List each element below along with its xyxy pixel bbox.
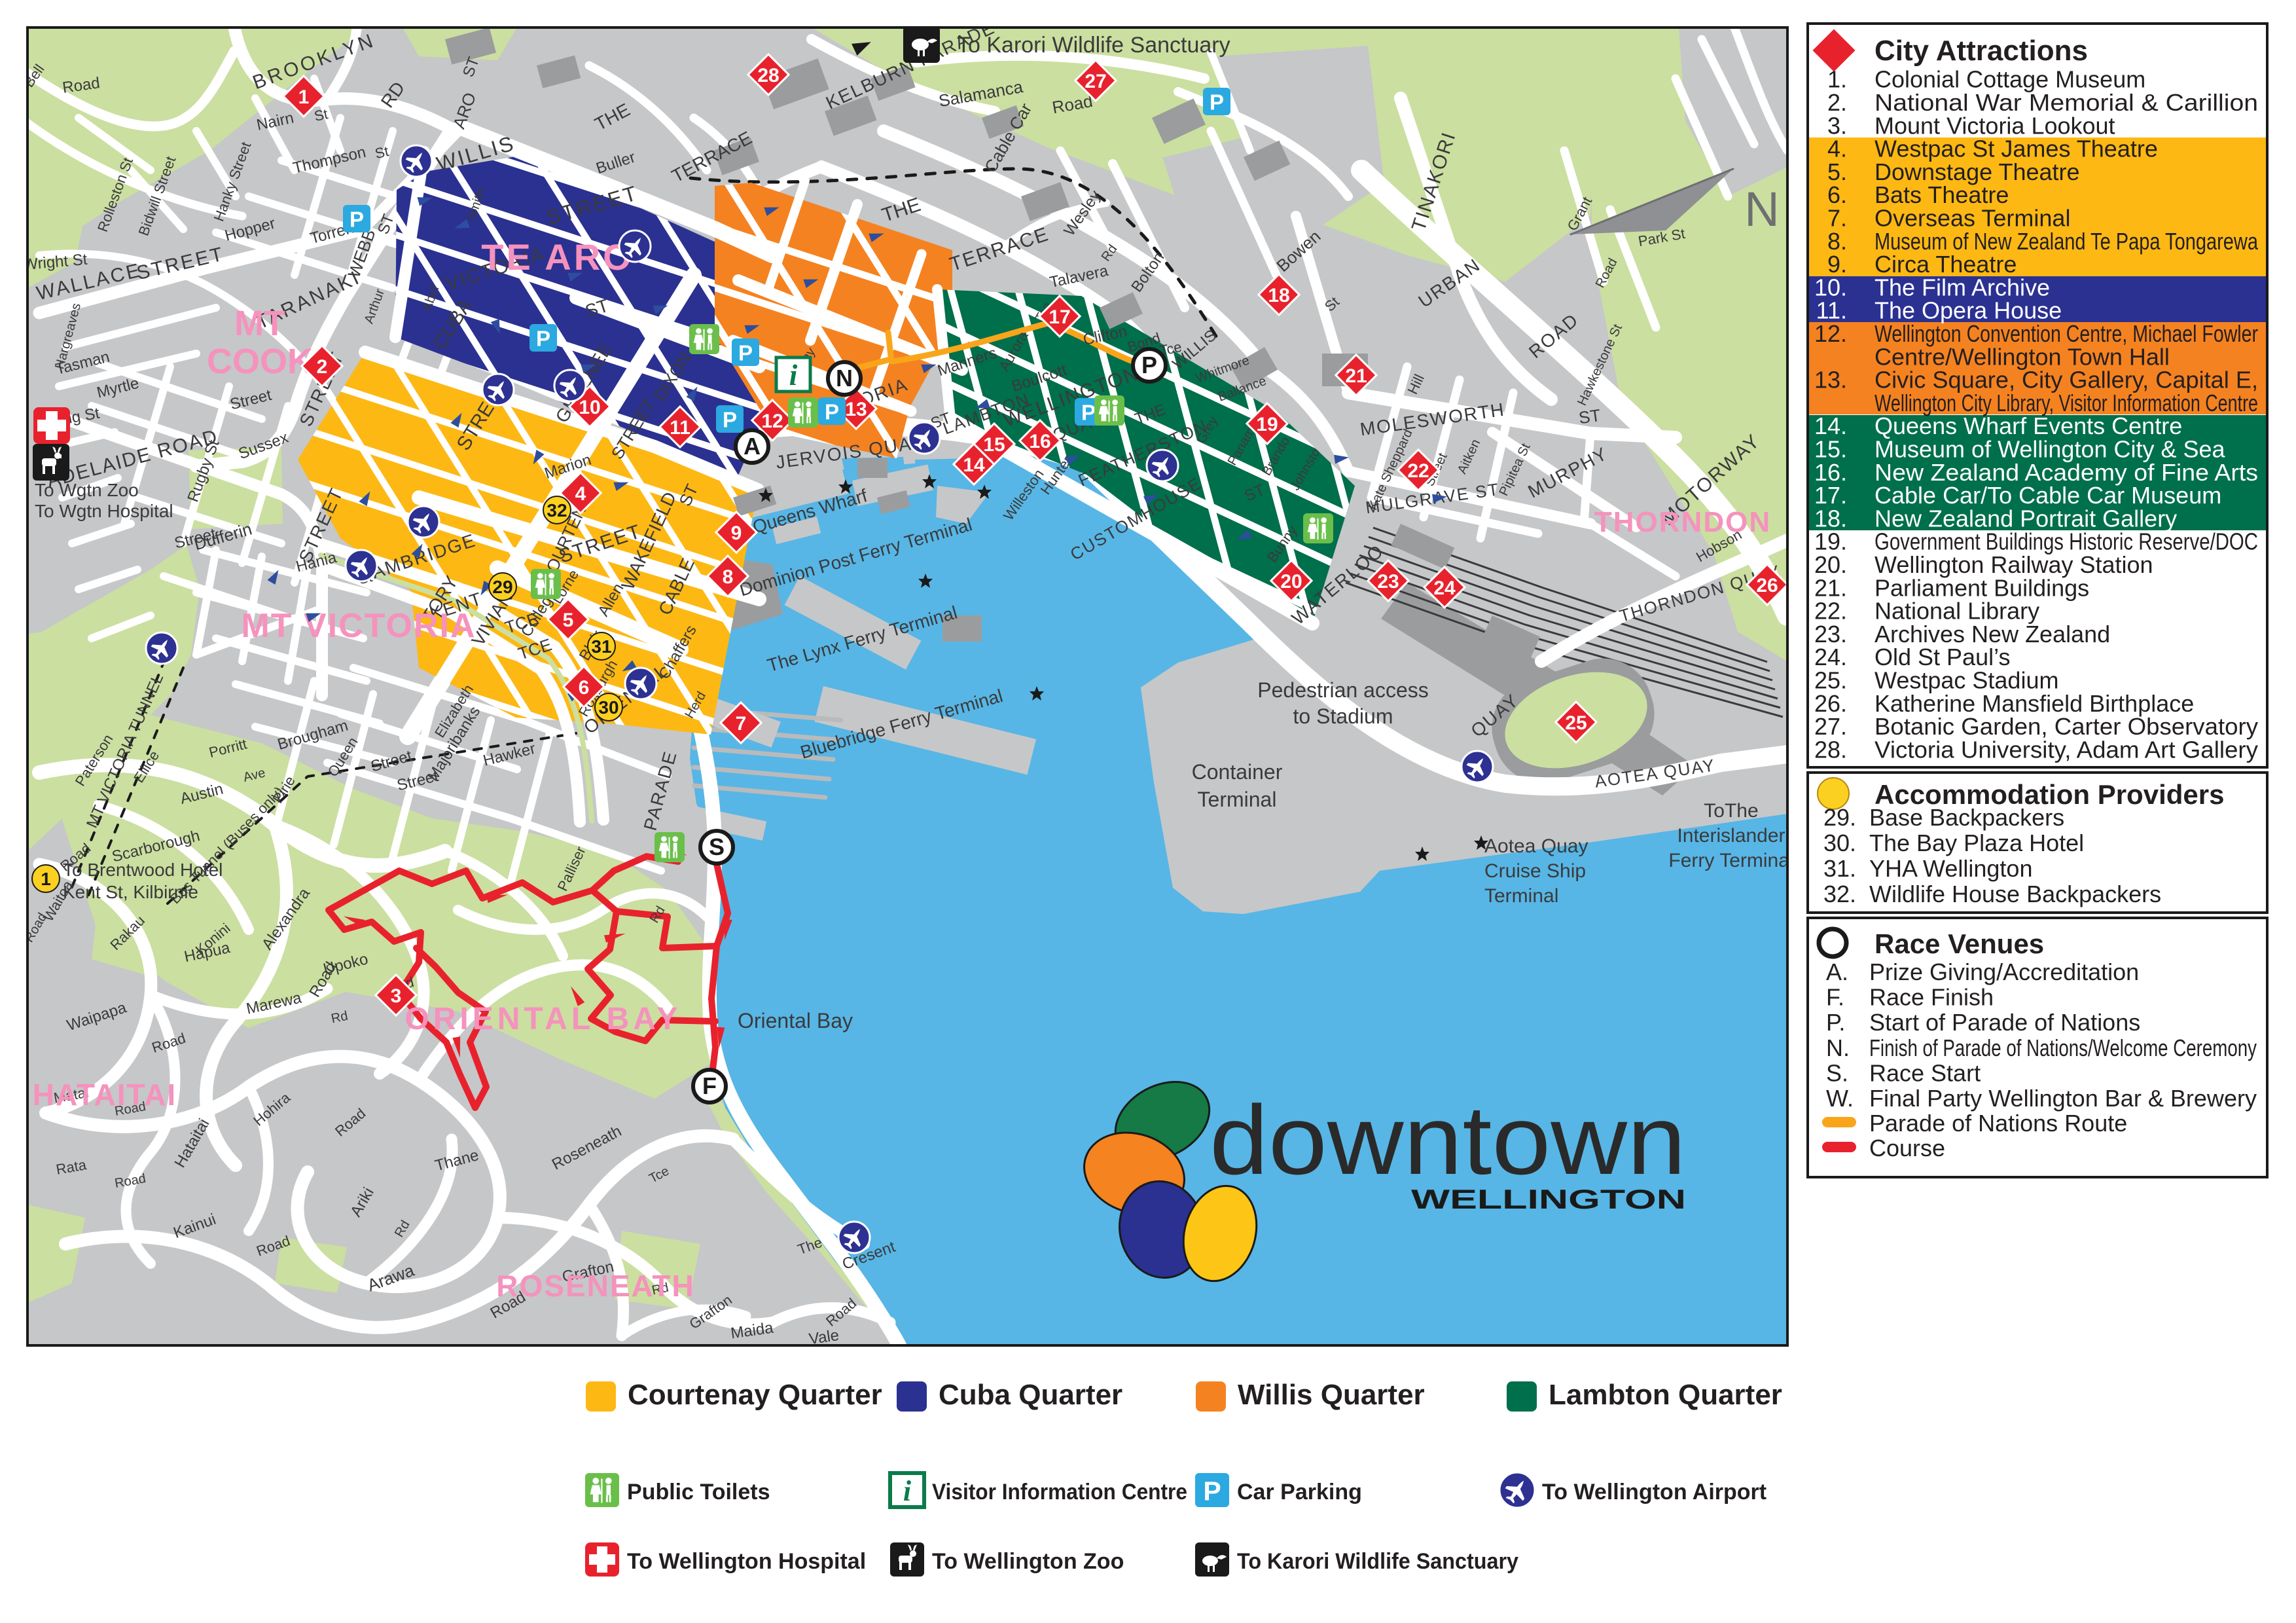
svg-text:A.: A. bbox=[1826, 958, 1848, 985]
svg-text:F: F bbox=[702, 1072, 717, 1099]
svg-text:P: P bbox=[723, 408, 737, 432]
svg-text:i: i bbox=[789, 358, 798, 392]
svg-text:Start of Parade of Nations: Start of Parade of Nations bbox=[1869, 1009, 2140, 1036]
svg-text:Final Party Wellington Bar & B: Final Party Wellington Bar & Brewery bbox=[1869, 1085, 2257, 1112]
svg-text:P: P bbox=[1210, 90, 1224, 115]
svg-text:26: 26 bbox=[1756, 575, 1778, 596]
svg-text:W.: W. bbox=[1826, 1085, 1854, 1112]
svg-text:Wildlife House Backpackers: Wildlife House Backpackers bbox=[1869, 881, 2161, 907]
svg-text:To Wellington Airport: To Wellington Airport bbox=[1542, 1480, 1767, 1504]
svg-text:ST: ST bbox=[1577, 405, 1602, 428]
svg-text:The Bay Plaza Hotel: The Bay Plaza Hotel bbox=[1869, 830, 2084, 856]
svg-text:6: 6 bbox=[579, 677, 590, 699]
svg-text:WELLINGTON: WELLINGTON bbox=[1411, 1184, 1686, 1214]
svg-text:Race Venues: Race Venues bbox=[1874, 928, 2044, 959]
svg-text:To Karori Wildlife Sanctuary: To Karori Wildlife Sanctuary bbox=[957, 33, 1230, 58]
svg-text:30.: 30. bbox=[1823, 830, 1856, 856]
svg-text:1: 1 bbox=[41, 869, 51, 889]
svg-text:N: N bbox=[836, 365, 853, 392]
svg-text:16: 16 bbox=[1029, 431, 1050, 452]
svg-text:Base Backpackers: Base Backpackers bbox=[1869, 804, 2064, 831]
svg-text:Lambton Quarter: Lambton Quarter bbox=[1549, 1379, 1782, 1411]
svg-text:MT VICTORIA: MT VICTORIA bbox=[241, 607, 476, 645]
svg-text:17: 17 bbox=[1049, 306, 1070, 328]
svg-text:Car Parking: Car Parking bbox=[1237, 1480, 1362, 1504]
svg-text:29.: 29. bbox=[1823, 804, 1856, 831]
svg-text:F.: F. bbox=[1826, 984, 1844, 1011]
svg-text:13.: 13. bbox=[1814, 367, 1847, 393]
svg-text:P: P bbox=[1141, 352, 1157, 378]
svg-text:Visitor Information Centre: Visitor Information Centre bbox=[932, 1480, 1187, 1504]
svg-text:Course: Course bbox=[1869, 1135, 1945, 1161]
svg-text:downtown: downtown bbox=[1210, 1085, 1686, 1195]
svg-text:N: N bbox=[1744, 182, 1779, 236]
svg-text:30: 30 bbox=[598, 697, 619, 718]
svg-text:3: 3 bbox=[391, 985, 402, 1007]
svg-text:P: P bbox=[1081, 401, 1096, 425]
svg-text:S: S bbox=[709, 833, 725, 860]
svg-text:City Attractions: City Attractions bbox=[1874, 35, 2088, 67]
svg-text:P: P bbox=[825, 400, 839, 424]
svg-text:YHA Wellington: YHA Wellington bbox=[1869, 855, 2032, 882]
svg-text:12.: 12. bbox=[1814, 320, 1847, 347]
svg-text:Container: Container bbox=[1192, 760, 1283, 784]
svg-text:COOK: COOK bbox=[207, 342, 313, 381]
svg-text:Terminal: Terminal bbox=[1198, 788, 1277, 811]
svg-text:20: 20 bbox=[1280, 571, 1302, 593]
svg-text:Courtenay Quarter: Courtenay Quarter bbox=[628, 1379, 882, 1411]
svg-text:i: i bbox=[903, 1475, 912, 1507]
svg-text:4: 4 bbox=[575, 483, 586, 505]
svg-text:23: 23 bbox=[1377, 571, 1399, 593]
svg-text:Public Toilets: Public Toilets bbox=[627, 1480, 770, 1504]
svg-text:Cuba Quarter: Cuba Quarter bbox=[939, 1379, 1122, 1411]
svg-text:Terminal: Terminal bbox=[1484, 885, 1558, 907]
svg-text:To Wellington Hospital: To Wellington Hospital bbox=[627, 1549, 866, 1574]
svg-text:Interislander: Interislander bbox=[1677, 825, 1785, 847]
svg-text:8: 8 bbox=[723, 566, 734, 588]
svg-text:32: 32 bbox=[547, 500, 567, 520]
svg-text:ORIENTAL BAY: ORIENTAL BAY bbox=[404, 1002, 681, 1036]
svg-text:N.: N. bbox=[1826, 1034, 1850, 1061]
svg-text:1: 1 bbox=[298, 86, 310, 108]
svg-text:Race Start: Race Start bbox=[1869, 1059, 1981, 1086]
svg-text:Finish of Parade of Nations/We: Finish of Parade of Nations/Welcome Cere… bbox=[1869, 1034, 2257, 1061]
svg-text:32.: 32. bbox=[1823, 881, 1856, 907]
svg-text:P: P bbox=[1203, 1476, 1221, 1506]
svg-text:P.: P. bbox=[1826, 1009, 1845, 1036]
svg-text:Prize Giving/Accreditation: Prize Giving/Accreditation bbox=[1869, 958, 2139, 985]
svg-text:Kent St, Kilbirnie: Kent St, Kilbirnie bbox=[63, 882, 198, 902]
svg-text:12: 12 bbox=[761, 410, 783, 432]
svg-text:14: 14 bbox=[963, 454, 985, 476]
svg-text:28: 28 bbox=[757, 65, 779, 86]
svg-text:ROSENEATH: ROSENEATH bbox=[496, 1269, 694, 1303]
svg-text:HATAITAI: HATAITAI bbox=[33, 1078, 177, 1112]
svg-text:Pedestrian access: Pedestrian access bbox=[1257, 678, 1428, 702]
svg-text:24: 24 bbox=[1433, 577, 1456, 599]
svg-text:27: 27 bbox=[1085, 71, 1106, 92]
svg-text:13: 13 bbox=[845, 399, 867, 420]
svg-text:P: P bbox=[738, 341, 753, 365]
svg-text:11: 11 bbox=[670, 417, 691, 439]
svg-text:Parade of Nations Route: Parade of Nations Route bbox=[1869, 1110, 2127, 1137]
svg-text:Cruise Ship: Cruise Ship bbox=[1484, 860, 1586, 882]
svg-text:15: 15 bbox=[983, 434, 1005, 456]
svg-text:25: 25 bbox=[1565, 712, 1587, 734]
svg-text:7: 7 bbox=[736, 713, 747, 735]
svg-text:29: 29 bbox=[492, 577, 512, 597]
svg-text:Ferry Terminal: Ferry Terminal bbox=[1668, 850, 1793, 871]
svg-text:TE ARO: TE ARO bbox=[481, 236, 634, 278]
svg-text:22: 22 bbox=[1407, 460, 1429, 482]
svg-text:To Wgtn Zoo: To Wgtn Zoo bbox=[35, 480, 139, 500]
svg-text:Victoria University, Adam Art: Victoria University, Adam Art Gallery bbox=[1874, 736, 2258, 763]
svg-text:To Wgtn Hospital: To Wgtn Hospital bbox=[35, 501, 173, 521]
svg-text:to Stadium: to Stadium bbox=[1293, 704, 1393, 728]
svg-text:9: 9 bbox=[731, 522, 742, 544]
svg-text:A: A bbox=[744, 433, 761, 460]
svg-text:ToThe: ToThe bbox=[1704, 800, 1758, 822]
svg-text:10: 10 bbox=[579, 397, 600, 418]
svg-text:18: 18 bbox=[1268, 285, 1289, 306]
svg-text:21: 21 bbox=[1345, 365, 1367, 387]
svg-text:28.: 28. bbox=[1814, 736, 1847, 763]
svg-text:THORNDON: THORNDON bbox=[1594, 506, 1771, 538]
svg-text:19: 19 bbox=[1256, 414, 1278, 435]
svg-text:31.: 31. bbox=[1823, 855, 1856, 882]
svg-text:Race Finish: Race Finish bbox=[1869, 984, 1994, 1011]
svg-text:To Brentwood Hotel: To Brentwood Hotel bbox=[63, 860, 223, 880]
svg-text:Willis Quarter: Willis Quarter bbox=[1238, 1379, 1425, 1411]
svg-text:P: P bbox=[350, 208, 364, 232]
svg-text:5: 5 bbox=[563, 610, 574, 631]
svg-text:P: P bbox=[536, 327, 550, 351]
svg-text:31: 31 bbox=[591, 636, 611, 657]
svg-text:S.: S. bbox=[1826, 1059, 1848, 1086]
svg-text:2: 2 bbox=[317, 356, 328, 378]
svg-text:MT: MT bbox=[234, 304, 285, 343]
svg-text:To Wellington Zoo: To Wellington Zoo bbox=[932, 1549, 1124, 1574]
svg-text:Oriental Bay: Oriental Bay bbox=[738, 1009, 853, 1032]
svg-text:To Karori Wildlife Sanctuary: To Karori Wildlife Sanctuary bbox=[1237, 1549, 1518, 1574]
svg-text:Aotea Quay: Aotea Quay bbox=[1484, 835, 1588, 857]
